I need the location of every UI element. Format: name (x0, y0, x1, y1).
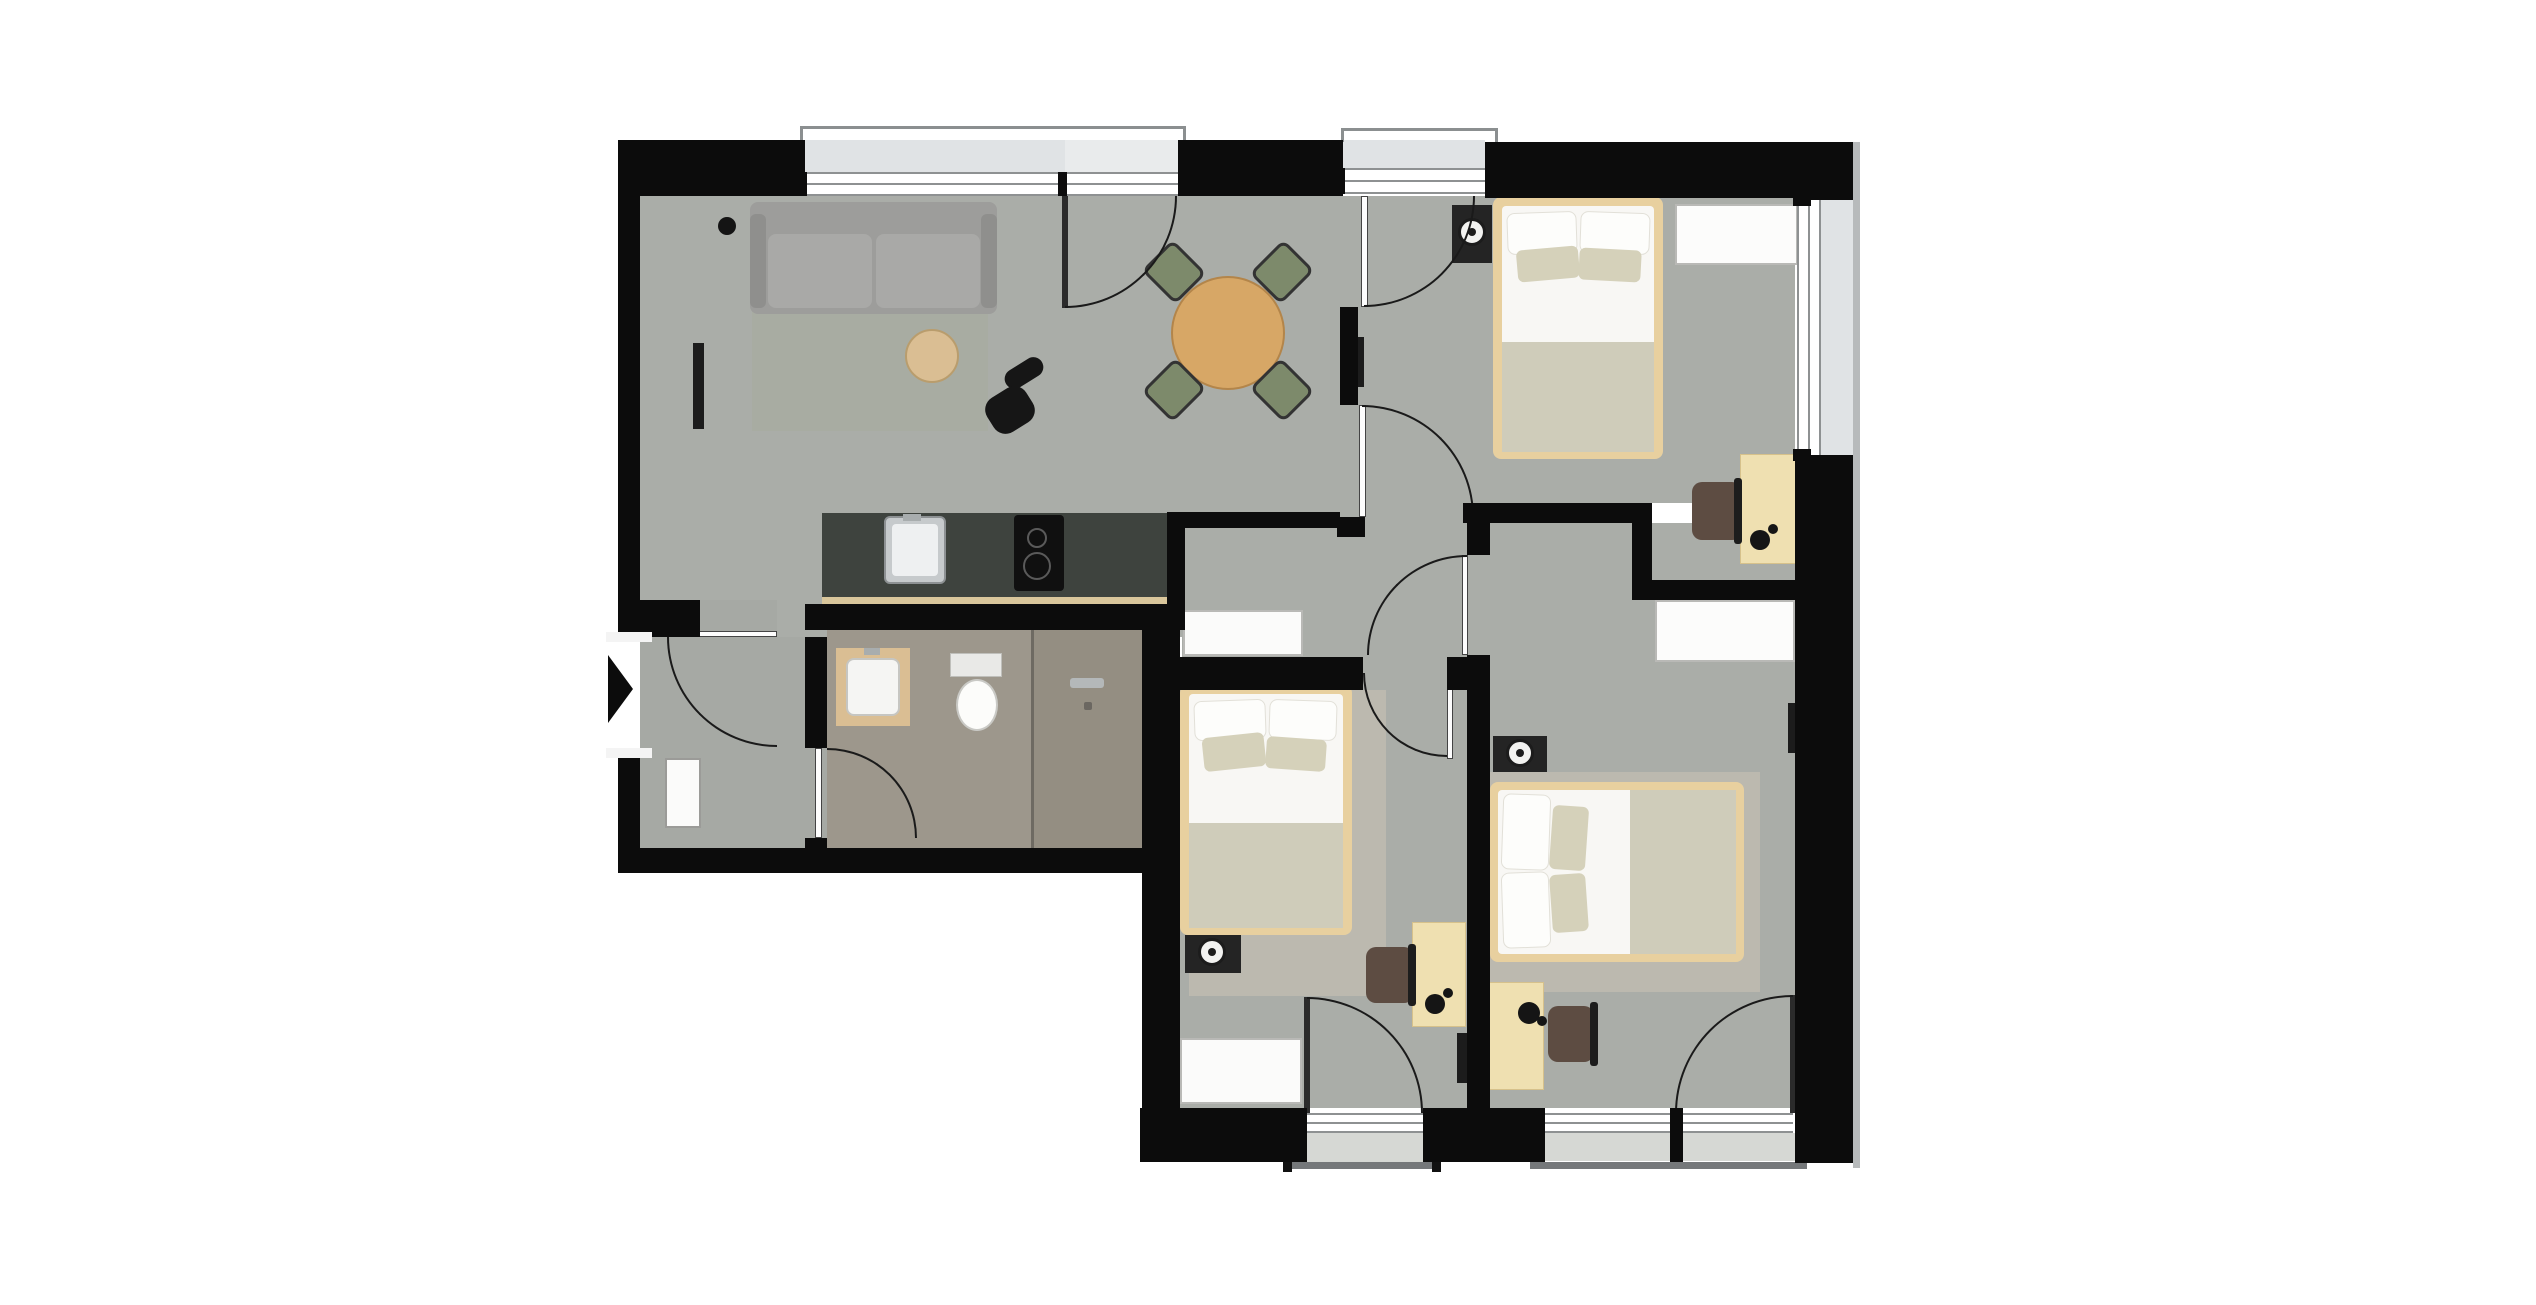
wall-bathroom-bedroom-2 (1142, 630, 1180, 1162)
ceiling-light (718, 217, 736, 235)
bed-2-cushion-right (1265, 736, 1327, 772)
entry-wardrobe (665, 758, 701, 828)
wall-bedroom-1-south (1463, 503, 1652, 523)
chair-2-seat (1366, 947, 1414, 1003)
floor-plan-page (0, 0, 2536, 1305)
shower-head (1070, 678, 1104, 688)
doorway-bedroom-3 (1467, 555, 1490, 655)
radiator-bedroom-1 (1358, 337, 1364, 387)
wall-bedroom-3-west-b (1467, 655, 1490, 1108)
hall-wardrobe (1183, 610, 1303, 656)
jamb-living-window-left (795, 172, 807, 196)
wall-junction (1337, 517, 1365, 537)
desk-2-lamp (1425, 994, 1445, 1014)
door-leaf-bathroom (815, 748, 822, 838)
wall-living-south (1182, 512, 1340, 528)
wall-top-a (618, 140, 805, 196)
desk-1-lamp-dot (1768, 524, 1778, 534)
jamb-right-window-bottom (1793, 449, 1811, 461)
window-terrace-3 (1683, 1113, 1793, 1133)
front-door-jamb-top (606, 632, 652, 642)
doorway-hallway (1340, 405, 1358, 517)
wall-kitchen-end (1167, 512, 1185, 630)
wall-left-upper (618, 140, 640, 600)
bathroom-sink (846, 658, 900, 716)
window-bedroom-3 (1545, 1113, 1670, 1133)
wall-bedroom-2-north (1180, 657, 1363, 690)
bed-3-cushion-bottom (1549, 873, 1589, 933)
desk-1 (1740, 454, 1796, 564)
chair-3-bar (1590, 1002, 1598, 1066)
jamb-living-window-mid (1058, 172, 1067, 196)
bed-1-blanket (1502, 342, 1654, 452)
window-balcony-door (1065, 172, 1178, 196)
front-door-jamb-bottom (606, 748, 652, 758)
wall-top-c (1485, 142, 1853, 198)
glass-balcony-door (1065, 140, 1178, 173)
bed-3-pillow-bottom (1501, 871, 1552, 949)
jamb-bedroom-1-window (1337, 168, 1345, 194)
terrace-sill-bedroom-2 (1283, 1162, 1440, 1169)
wall-bottom-mid-c (1670, 1108, 1683, 1162)
sill-right (1853, 142, 1860, 1168)
closet-bedroom-3 (1655, 600, 1795, 662)
wall-bathroom-west-b (805, 838, 827, 848)
balcony-rail-bedroom-1 (1341, 128, 1498, 142)
burner-large (1023, 552, 1051, 580)
chair-1-bar (1734, 478, 1742, 544)
kitchen-counter (822, 513, 1167, 597)
shower-divider (1031, 630, 1034, 848)
wall-right-bottom (1795, 1108, 1853, 1163)
bed-2-cushion-left (1201, 732, 1266, 772)
glass-right (1821, 200, 1853, 455)
window-living (805, 172, 1065, 196)
desk-2-lamp-dot (1443, 988, 1453, 998)
bed-3-cushion-top (1549, 805, 1589, 871)
wall-partition-stub (1340, 307, 1358, 405)
doorway-bedroom-1 (1340, 196, 1358, 307)
burner-small (1027, 528, 1047, 548)
bed-2-blanket (1189, 823, 1343, 928)
terrace-sill-bedroom-3 (1530, 1162, 1807, 1169)
bed-2-pillow-right (1268, 699, 1337, 741)
floor-shower (1033, 630, 1142, 848)
chair-2-bar (1408, 944, 1416, 1006)
wall-right (1795, 455, 1853, 1113)
wall-kitchen-bathroom (805, 604, 1167, 630)
wall-bedroom-2-north-b (1447, 657, 1467, 690)
balcony-rail-living (800, 126, 1186, 140)
wall-bottom-west (618, 848, 1142, 873)
bed-1-cushion-left (1516, 245, 1581, 282)
desk-1-lamp (1750, 530, 1770, 550)
chair-3-seat (1548, 1006, 1594, 1062)
closet-bedroom-1 (1675, 204, 1798, 265)
toilet-tank (950, 653, 1002, 677)
desk-3-lamp-dot (1537, 1016, 1547, 1026)
shower-drain (1084, 702, 1092, 710)
bathroom-faucet (864, 648, 880, 655)
glass-living-window (805, 140, 1065, 173)
sofa-arm-right (981, 214, 997, 308)
wall-bottom-mid-a (1140, 1108, 1307, 1162)
floor-plan (0, 0, 2536, 1305)
lamp-2-dot (1208, 948, 1216, 956)
sofa-cushion-right (876, 234, 980, 308)
coffee-table (905, 329, 959, 383)
sofa-arm-left (750, 214, 766, 308)
wardrobe-bedroom-2 (1180, 1038, 1302, 1104)
toilet-bowl (956, 679, 998, 731)
window-bedroom-1 (1343, 168, 1485, 194)
glass-bedroom1-window (1343, 140, 1485, 170)
radiator-living (693, 343, 704, 429)
kitchen-faucet (903, 514, 921, 521)
bed-3-pillow-top (1501, 793, 1552, 871)
radiator-bedroom-2 (1457, 1033, 1467, 1083)
sofa-cushion-left (768, 234, 872, 308)
kitchen-sink-basin (892, 524, 938, 576)
wall-closet-top (1640, 580, 1795, 600)
wall-bathroom-west-a (805, 637, 827, 748)
lamp-3-dot (1516, 749, 1524, 757)
wall-top-b (1178, 140, 1343, 196)
jamb-right-window-top (1793, 194, 1811, 206)
wall-bedroom-3-west-a (1467, 523, 1490, 555)
desk-3 (1488, 982, 1544, 1090)
window-right (1797, 200, 1821, 455)
window-terrace-2 (1307, 1113, 1423, 1133)
bed-1-cushion-right (1578, 247, 1642, 282)
wall-bottom-mid-b (1423, 1108, 1545, 1162)
bed-3-blanket (1630, 790, 1736, 954)
